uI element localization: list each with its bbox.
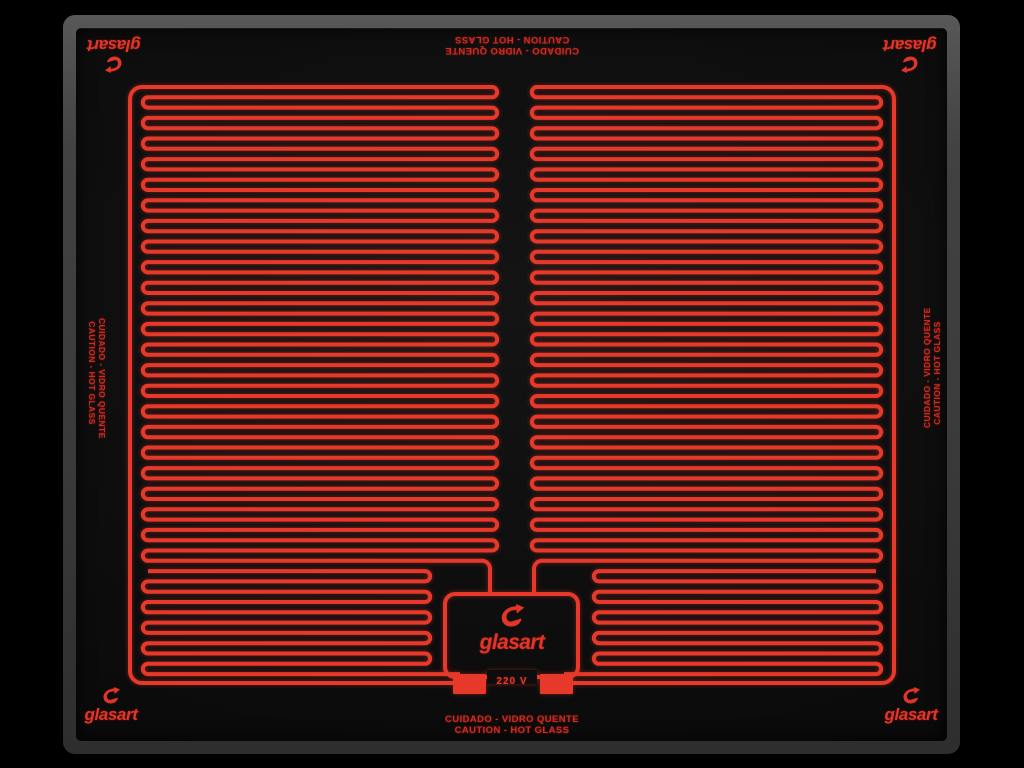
warning-line-en: CAUTION - HOT GLASS bbox=[87, 318, 97, 428]
warning-line-en: CAUTION - HOT GLASS bbox=[412, 34, 612, 45]
right-serpentine-upper bbox=[532, 87, 881, 596]
glasart-bird-icon bbox=[103, 56, 125, 74]
brand-logo-bottom-left: glasart bbox=[61, 686, 161, 725]
glasart-bird-icon bbox=[499, 601, 525, 629]
warning-label-top: CUIDADO - VIDRO QUENTE CAUTION - HOT GLA… bbox=[412, 34, 612, 55]
warning-label-right: CUIDADO - VIDRO QUENTE CAUTION - HOT GLA… bbox=[922, 318, 942, 428]
glasart-bird-icon bbox=[100, 686, 122, 704]
right-serpentine-lower bbox=[564, 571, 881, 674]
brand-wordmark: glasart bbox=[885, 705, 938, 725]
brand-logo-top-right: glasart bbox=[860, 35, 960, 74]
brand-wordmark: glasart bbox=[85, 705, 138, 725]
warning-label-left: CUIDADO - VIDRO QUENTE CAUTION - HOT GLA… bbox=[87, 318, 107, 428]
warning-line-en: CAUTION - HOT GLASS bbox=[412, 726, 612, 737]
left-serpentine-upper bbox=[143, 87, 497, 596]
warning-line-pt: CUIDADO - VIDRO QUENTE bbox=[922, 318, 932, 428]
warning-line-pt: CUIDADO - VIDRO QUENTE bbox=[412, 715, 612, 726]
brand-wordmark: glasart bbox=[884, 35, 937, 55]
voltage-label: 220 V bbox=[487, 676, 537, 687]
warning-line-pt: CUIDADO - VIDRO QUENTE bbox=[97, 318, 107, 428]
terminal-left bbox=[453, 674, 486, 694]
brand-wordmark: glasart bbox=[480, 631, 545, 655]
glasart-bird-icon bbox=[899, 56, 921, 74]
brand-logo-connector-box: glasart bbox=[462, 601, 562, 655]
terminal-right bbox=[540, 674, 573, 694]
brand-logo-bottom-right: glasart bbox=[861, 686, 961, 725]
warning-label-bottom: CUIDADO - VIDRO QUENTE CAUTION - HOT GLA… bbox=[412, 715, 612, 736]
brand-logo-top-left: glasart bbox=[64, 35, 164, 74]
warning-line-en: CAUTION - HOT GLASS bbox=[932, 318, 942, 428]
warning-line-pt: CUIDADO - VIDRO QUENTE bbox=[412, 45, 612, 56]
glasart-bird-icon bbox=[900, 686, 922, 704]
brand-wordmark: glasart bbox=[88, 35, 141, 55]
left-serpentine-lower bbox=[143, 571, 460, 674]
